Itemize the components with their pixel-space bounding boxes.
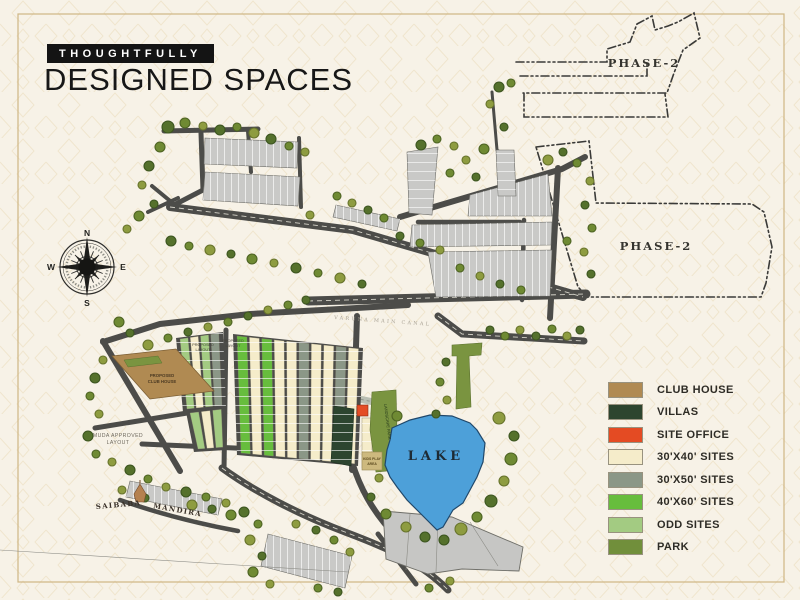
- tree-icon-highlight: [293, 265, 298, 270]
- club-label-2: CLUB HOUSE: [148, 379, 177, 384]
- tree-icon-highlight: [92, 375, 97, 380]
- tree-icon-highlight: [365, 207, 369, 211]
- tree-icon-highlight: [560, 149, 564, 153]
- tree-icon-highlight: [477, 273, 481, 277]
- tree-icon-highlight: [447, 578, 451, 582]
- tree-icon-highlight: [496, 84, 501, 89]
- legend-row-odd-sites: ODD SITES: [608, 517, 734, 532]
- tree-icon-highlight: [549, 326, 553, 330]
- mid-band-plots-b: [428, 250, 552, 297]
- tree-icon-highlight: [487, 327, 491, 331]
- tree-icon-highlight: [433, 411, 437, 415]
- tree-icon-highlight: [157, 144, 162, 149]
- tree-icon-highlight: [267, 581, 271, 585]
- tree-icon-highlight: [473, 174, 477, 178]
- legend-swatch-40x60: [608, 494, 643, 510]
- tree-icon-highlight: [426, 585, 430, 589]
- tree-icon-highlight: [217, 127, 222, 132]
- tree-icon-highlight: [507, 455, 512, 460]
- tree-icon-highlight: [225, 319, 229, 323]
- tree-icon-highlight: [87, 393, 91, 397]
- tree-icon-highlight: [381, 215, 385, 219]
- tree-icon-highlight: [182, 120, 187, 125]
- tree-icon-highlight: [286, 143, 290, 147]
- tree-icon-highlight: [441, 537, 446, 542]
- tree-icon-highlight: [228, 512, 233, 517]
- brochure-page: N E S W PHASE-2 PHASE-2 LAKE VARUNA MAIN…: [0, 0, 800, 600]
- lake-label: LAKE: [408, 449, 464, 464]
- site-office-block: [357, 405, 368, 416]
- tree-icon-highlight: [255, 521, 259, 525]
- tree-icon-highlight: [93, 451, 97, 455]
- tree-icon-highlight: [574, 160, 578, 164]
- legend-swatch-odd-sites: [608, 517, 643, 533]
- tree-icon-highlight: [334, 193, 338, 197]
- legend-row-villas: VILLAS: [608, 405, 734, 420]
- legend-swatch-30x50: [608, 472, 643, 488]
- cluster-right-road: [299, 138, 301, 207]
- tree-icon-highlight: [165, 335, 169, 339]
- tree-icon-highlight: [437, 247, 441, 251]
- kids-play-area: [362, 452, 382, 470]
- tree-icon-highlight: [293, 521, 297, 525]
- tree-icon-highlight: [100, 357, 104, 361]
- tree-icon-highlight: [223, 500, 227, 504]
- tree-icon-highlight: [337, 275, 342, 280]
- tree-icon-highlight: [394, 413, 399, 418]
- tree-icon-highlight: [501, 124, 505, 128]
- muda-label-2: LAYOUT: [107, 440, 130, 446]
- estate-blocks: [176, 332, 372, 468]
- tree-icon-highlight: [124, 226, 128, 230]
- legend-row-club-house: CLUB HOUSE: [608, 382, 734, 397]
- legend-label-club-house: CLUB HOUSE: [657, 384, 734, 396]
- tree-icon-highlight: [497, 281, 501, 285]
- legend-label-30x40: 30'X40' SITES: [657, 451, 734, 463]
- tree-icon-highlight: [508, 80, 512, 84]
- legend-swatch-villas: [608, 404, 643, 420]
- compass-east-label: E: [120, 262, 126, 272]
- cluster-top-road: [164, 129, 258, 131]
- tree-icon-highlight: [259, 553, 263, 557]
- tree-icon-highlight: [189, 502, 194, 507]
- proposed-label-1a: PROPOSED: [192, 343, 214, 347]
- phase2-east-label: PHASE-2: [620, 239, 693, 253]
- tree-icon-highlight: [119, 487, 123, 491]
- tree-icon-highlight: [136, 213, 141, 218]
- phase2-north-label: PHASE-2: [608, 56, 681, 70]
- tree-icon-highlight: [518, 287, 522, 291]
- legend-label-odd-sites: ODD SITES: [657, 519, 720, 531]
- legend-swatch-club-house: [608, 382, 643, 398]
- tree-icon-highlight: [247, 537, 252, 542]
- tree-icon-highlight: [139, 182, 143, 186]
- compass-west-label: W: [47, 262, 56, 272]
- tree-icon-highlight: [457, 265, 461, 269]
- tree-icon-highlight: [397, 233, 401, 237]
- tree-icon-highlight: [581, 249, 585, 253]
- tree-icon-highlight: [376, 475, 380, 479]
- tree-icon-highlight: [418, 142, 423, 147]
- tree-icon-highlight: [447, 170, 451, 174]
- villas-block: [331, 406, 354, 466]
- page-title: DESIGNED SPACES: [44, 62, 353, 98]
- tree-icon-highlight: [422, 534, 427, 539]
- legend-swatch-site-office: [608, 427, 643, 443]
- tree-icon-highlight: [146, 163, 151, 168]
- tree-icon-highlight: [533, 333, 537, 337]
- tree-icon-highlight: [209, 506, 213, 510]
- tree-icon-highlight: [185, 329, 189, 333]
- tree-icon-highlight: [85, 433, 90, 438]
- north-lane-plots: [496, 150, 516, 196]
- tree-icon-highlight: [151, 201, 155, 205]
- tree-icon-highlight: [203, 494, 207, 498]
- tree-icon-highlight: [251, 130, 256, 135]
- tree-icon-highlight: [434, 136, 438, 140]
- legend-label-site-office: SITE OFFICE: [657, 429, 729, 441]
- proposed-label-2b: LAYOUT: [226, 344, 242, 348]
- tree-icon-highlight: [589, 225, 593, 229]
- tree-icon-highlight: [444, 397, 448, 401]
- legend-row-park: PARK: [608, 540, 734, 555]
- tree-icon-highlight: [186, 243, 190, 247]
- tree-icon-highlight: [303, 297, 307, 301]
- tree-icon-highlight: [271, 260, 275, 264]
- legend-row-30x40: 30'X40' SITES: [608, 450, 734, 465]
- compass-north-label: N: [84, 228, 90, 238]
- legend-swatch-30x40: [608, 449, 643, 465]
- proposed-label-2a: PROPOSED: [222, 339, 244, 343]
- tree-icon-highlight: [96, 411, 100, 415]
- tree-icon-highlight: [109, 459, 113, 463]
- tree-icon-highlight: [127, 330, 131, 334]
- tree-icon-highlight: [451, 143, 455, 147]
- tree-icon-highlight: [313, 527, 317, 531]
- tree-icon-highlight: [168, 238, 173, 243]
- club-label-1: PROPOSED: [150, 373, 174, 378]
- tree-icon-highlight: [335, 589, 339, 593]
- tree-icon-highlight: [249, 256, 254, 261]
- tree-icon-highlight: [588, 271, 592, 275]
- tree-icon-highlight: [183, 489, 188, 494]
- tree-icon-highlight: [307, 212, 311, 216]
- tree-icon-highlight: [241, 509, 246, 514]
- legend-swatch-park: [608, 539, 643, 555]
- tree-icon-highlight: [582, 202, 586, 206]
- tree-icon-highlight: [443, 359, 447, 363]
- legend-row-30x50: 30'X50' SITES: [608, 472, 734, 487]
- tree-icon-highlight: [481, 146, 486, 151]
- tree-icon-highlight: [359, 281, 363, 285]
- tree-icon-highlight: [502, 333, 506, 337]
- tree-icon-highlight: [517, 327, 521, 331]
- tree-icon-highlight: [437, 379, 441, 383]
- tree-icon-highlight: [349, 200, 353, 204]
- tree-icon-highlight: [545, 157, 550, 162]
- tree-icon-highlight: [368, 494, 372, 498]
- tree-icon-highlight: [228, 251, 232, 255]
- tree-icon-highlight: [200, 123, 204, 127]
- tree-icon-highlight: [315, 270, 319, 274]
- tree-icon-highlight: [164, 123, 169, 128]
- tree-icon-highlight: [245, 313, 249, 317]
- tree-icon-highlight: [403, 524, 408, 529]
- tree-icon-highlight: [474, 514, 479, 519]
- tree-icon-highlight: [564, 238, 568, 242]
- tree-icon-highlight: [207, 247, 212, 252]
- tree-icon-highlight: [145, 342, 150, 347]
- tree-icon-highlight: [417, 240, 421, 244]
- kids-label-2: AREA: [367, 462, 377, 466]
- tree-icon-highlight: [487, 101, 491, 105]
- tree-icon-highlight: [347, 549, 351, 553]
- legend-row-40x60: 40'X60' SITES: [608, 495, 734, 510]
- title-badge-text: THOUGHTFULLY: [59, 48, 202, 60]
- cluster-plots-upper: [204, 138, 298, 168]
- legend-panel: CLUB HOUSE VILLAS SITE OFFICE 30'X40' SI…: [608, 382, 734, 562]
- kids-label-1: KIDS PLAY: [363, 457, 382, 461]
- compass-south-label: S: [84, 298, 90, 308]
- tree-icon-highlight: [487, 497, 492, 502]
- tree-icon-highlight: [511, 433, 516, 438]
- mid-band-plots-a: [410, 222, 552, 247]
- title-badge: THOUGHTFULLY: [47, 44, 214, 63]
- legend-label-villas: VILLAS: [657, 406, 699, 418]
- tree-icon-highlight: [268, 136, 273, 141]
- tree-icon-highlight: [495, 414, 500, 419]
- tree-icon-highlight: [457, 525, 462, 530]
- tree-icon-highlight: [383, 511, 388, 516]
- tree-icon-highlight: [302, 149, 306, 153]
- legend-label-park: PARK: [657, 541, 689, 553]
- tree-icon-highlight: [331, 537, 335, 541]
- tree-icon-highlight: [127, 467, 132, 472]
- legend-row-site-office: SITE OFFICE: [608, 427, 734, 442]
- cluster-plots-lower: [203, 172, 300, 206]
- tree-icon-highlight: [116, 319, 121, 324]
- tree-icon-highlight: [145, 476, 149, 480]
- tree-icon-highlight: [285, 302, 289, 306]
- tree-icon-highlight: [234, 124, 238, 128]
- tree-icon-highlight: [463, 157, 467, 161]
- tree-icon-highlight: [315, 585, 319, 589]
- tree-icon-highlight: [163, 484, 167, 488]
- tree-icon-highlight: [577, 327, 581, 331]
- proposed-label-1b: LAYOUT: [196, 348, 212, 352]
- tree-icon-highlight: [564, 333, 568, 337]
- tree-icon-highlight: [587, 178, 591, 182]
- tree-icon-highlight: [265, 307, 269, 311]
- legend-label-30x50: 30'X50' SITES: [657, 474, 734, 486]
- tree-icon-highlight: [501, 478, 506, 483]
- legend-label-40x60: 40'X60' SITES: [657, 496, 734, 508]
- muda-label-1: MUDA APPROVED: [93, 433, 143, 439]
- tree-icon-highlight: [250, 569, 255, 574]
- tree-icon-highlight: [205, 324, 209, 328]
